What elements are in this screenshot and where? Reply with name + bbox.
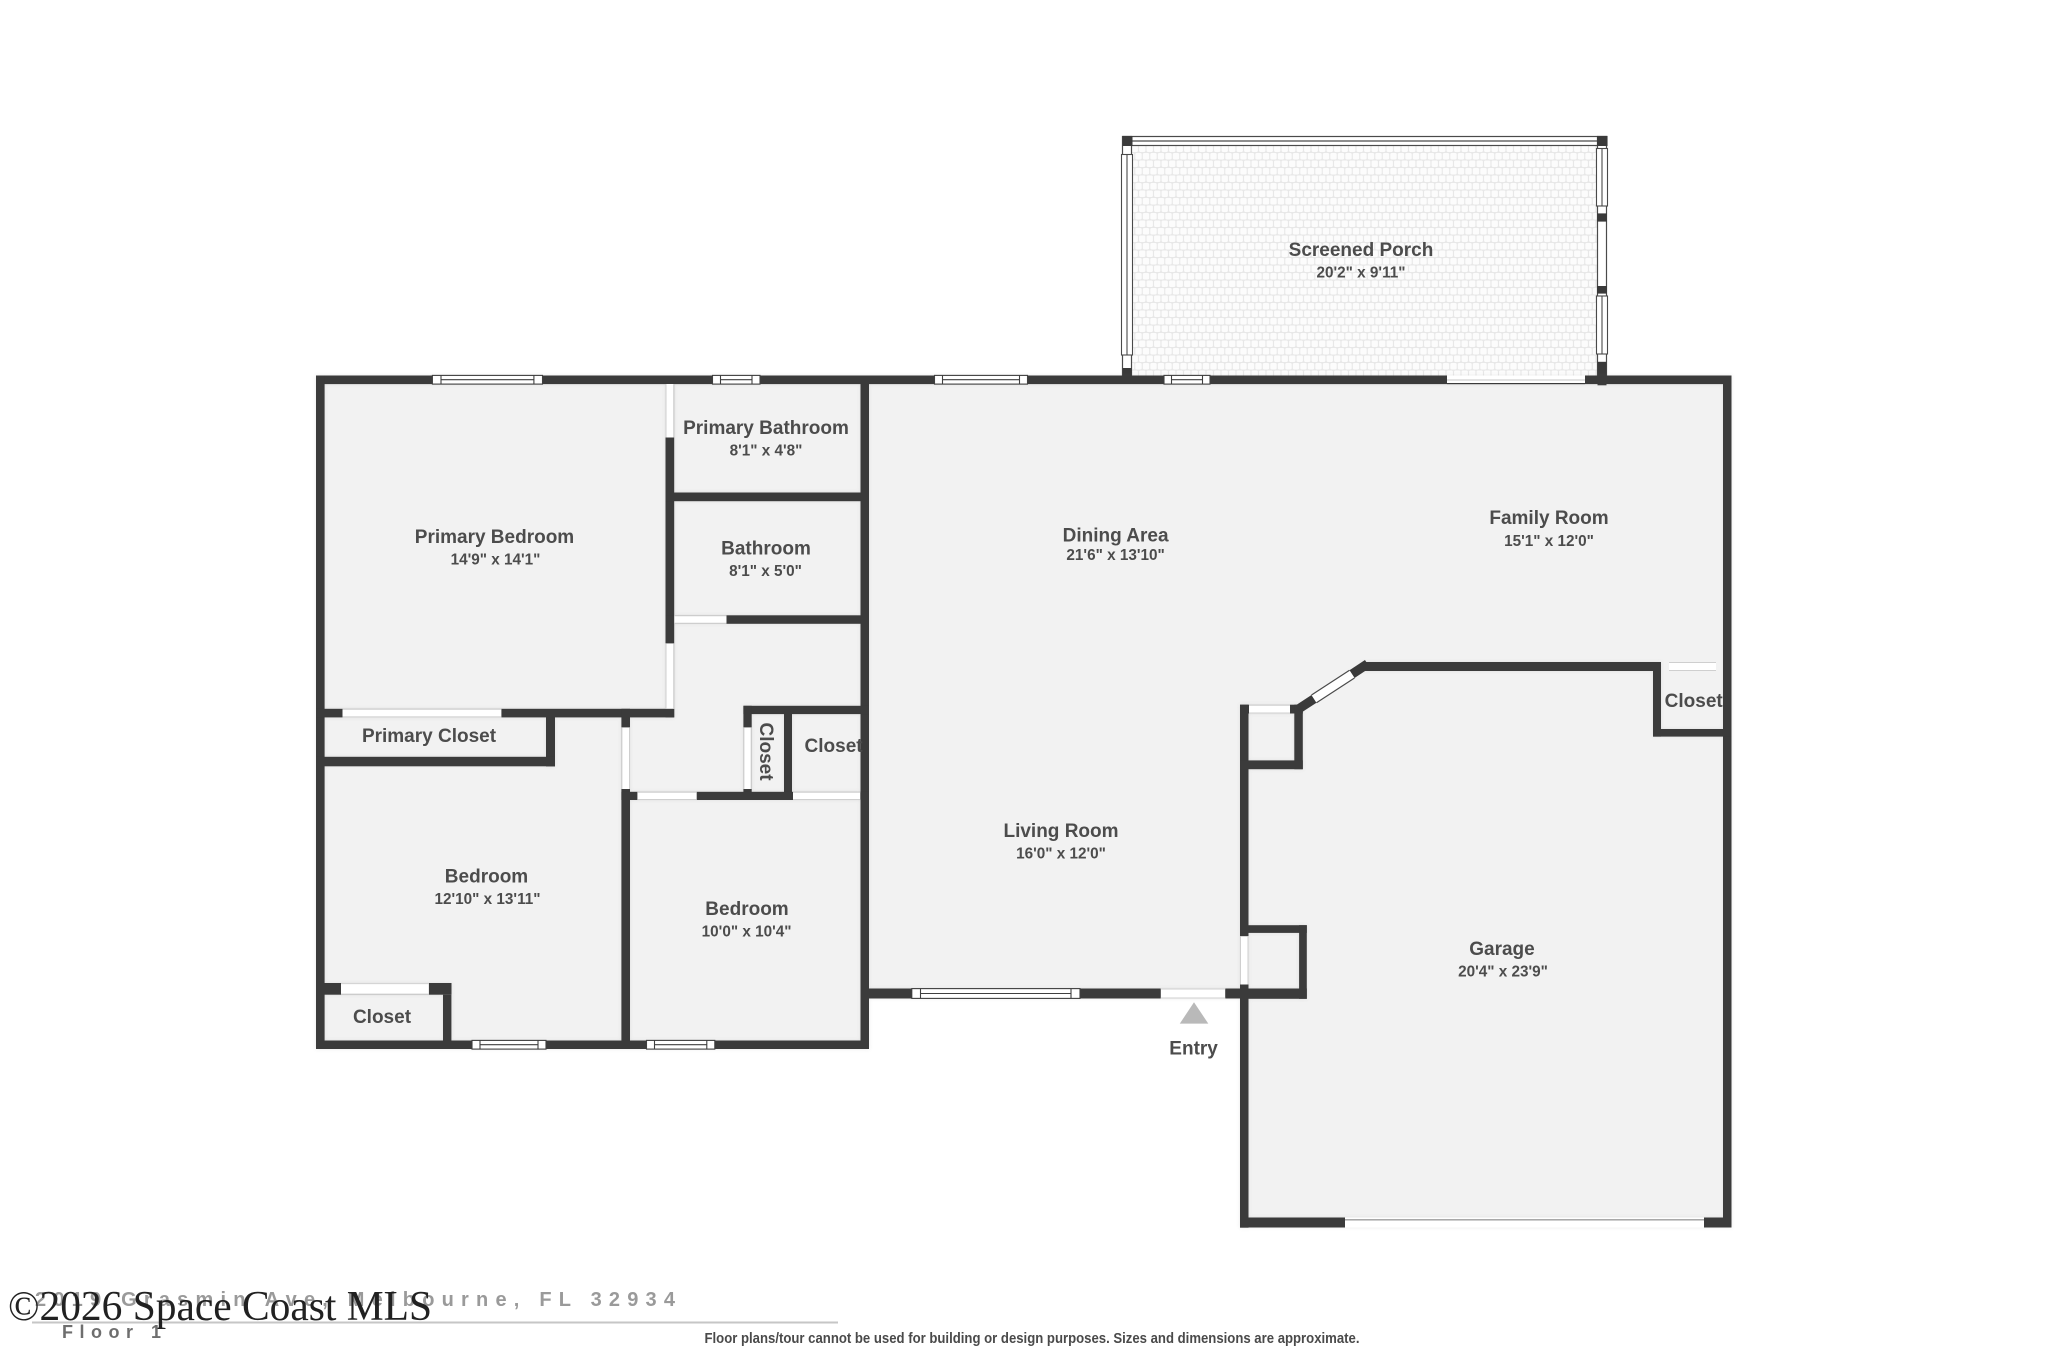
- svg-text:16'0" x 12'0": 16'0" x 12'0": [1016, 846, 1106, 863]
- svg-text:Closet: Closet: [805, 736, 864, 757]
- svg-text:15'1" x 12'0": 15'1" x 12'0": [1504, 533, 1594, 550]
- svg-text:Primary Bathroom: Primary Bathroom: [683, 418, 849, 439]
- svg-text:Entry: Entry: [1169, 1039, 1218, 1060]
- svg-text:Bedroom: Bedroom: [705, 899, 788, 920]
- svg-text:20'4" x 23'9": 20'4" x 23'9": [1458, 964, 1548, 981]
- svg-text:Bedroom: Bedroom: [445, 867, 528, 888]
- svg-text:Floor plans/tour cannot be use: Floor plans/tour cannot be used for buil…: [705, 1330, 1360, 1347]
- svg-text:Bathroom: Bathroom: [721, 539, 811, 560]
- svg-text:Closet: Closet: [353, 1007, 412, 1028]
- svg-text:Closet: Closet: [755, 722, 776, 781]
- svg-text:Living Room: Living Room: [1003, 821, 1118, 842]
- svg-text:Dining Area: Dining Area: [1063, 526, 1169, 547]
- svg-text:20'2" x 9'11": 20'2" x 9'11": [1317, 265, 1406, 282]
- svg-text:Garage: Garage: [1469, 939, 1534, 960]
- svg-text:Screened Porch: Screened Porch: [1289, 240, 1434, 261]
- svg-text:8'1" x 4'8": 8'1" x 4'8": [730, 443, 803, 460]
- svg-text:10'0" x 10'4": 10'0" x 10'4": [702, 924, 792, 941]
- svg-text:14'9" x 14'1": 14'9" x 14'1": [451, 552, 541, 569]
- svg-text:Family Room: Family Room: [1489, 508, 1608, 529]
- svg-text:8'1" x 5'0": 8'1" x 5'0": [729, 563, 802, 580]
- svg-text:12'10" x 13'11": 12'10" x 13'11": [434, 891, 540, 908]
- svg-text:Primary Closet: Primary Closet: [362, 726, 497, 747]
- svg-text:21'6" x 13'10": 21'6" x 13'10": [1066, 547, 1164, 564]
- svg-text:Closet: Closet: [1665, 691, 1724, 712]
- svg-text:Primary Bedroom: Primary Bedroom: [415, 527, 574, 548]
